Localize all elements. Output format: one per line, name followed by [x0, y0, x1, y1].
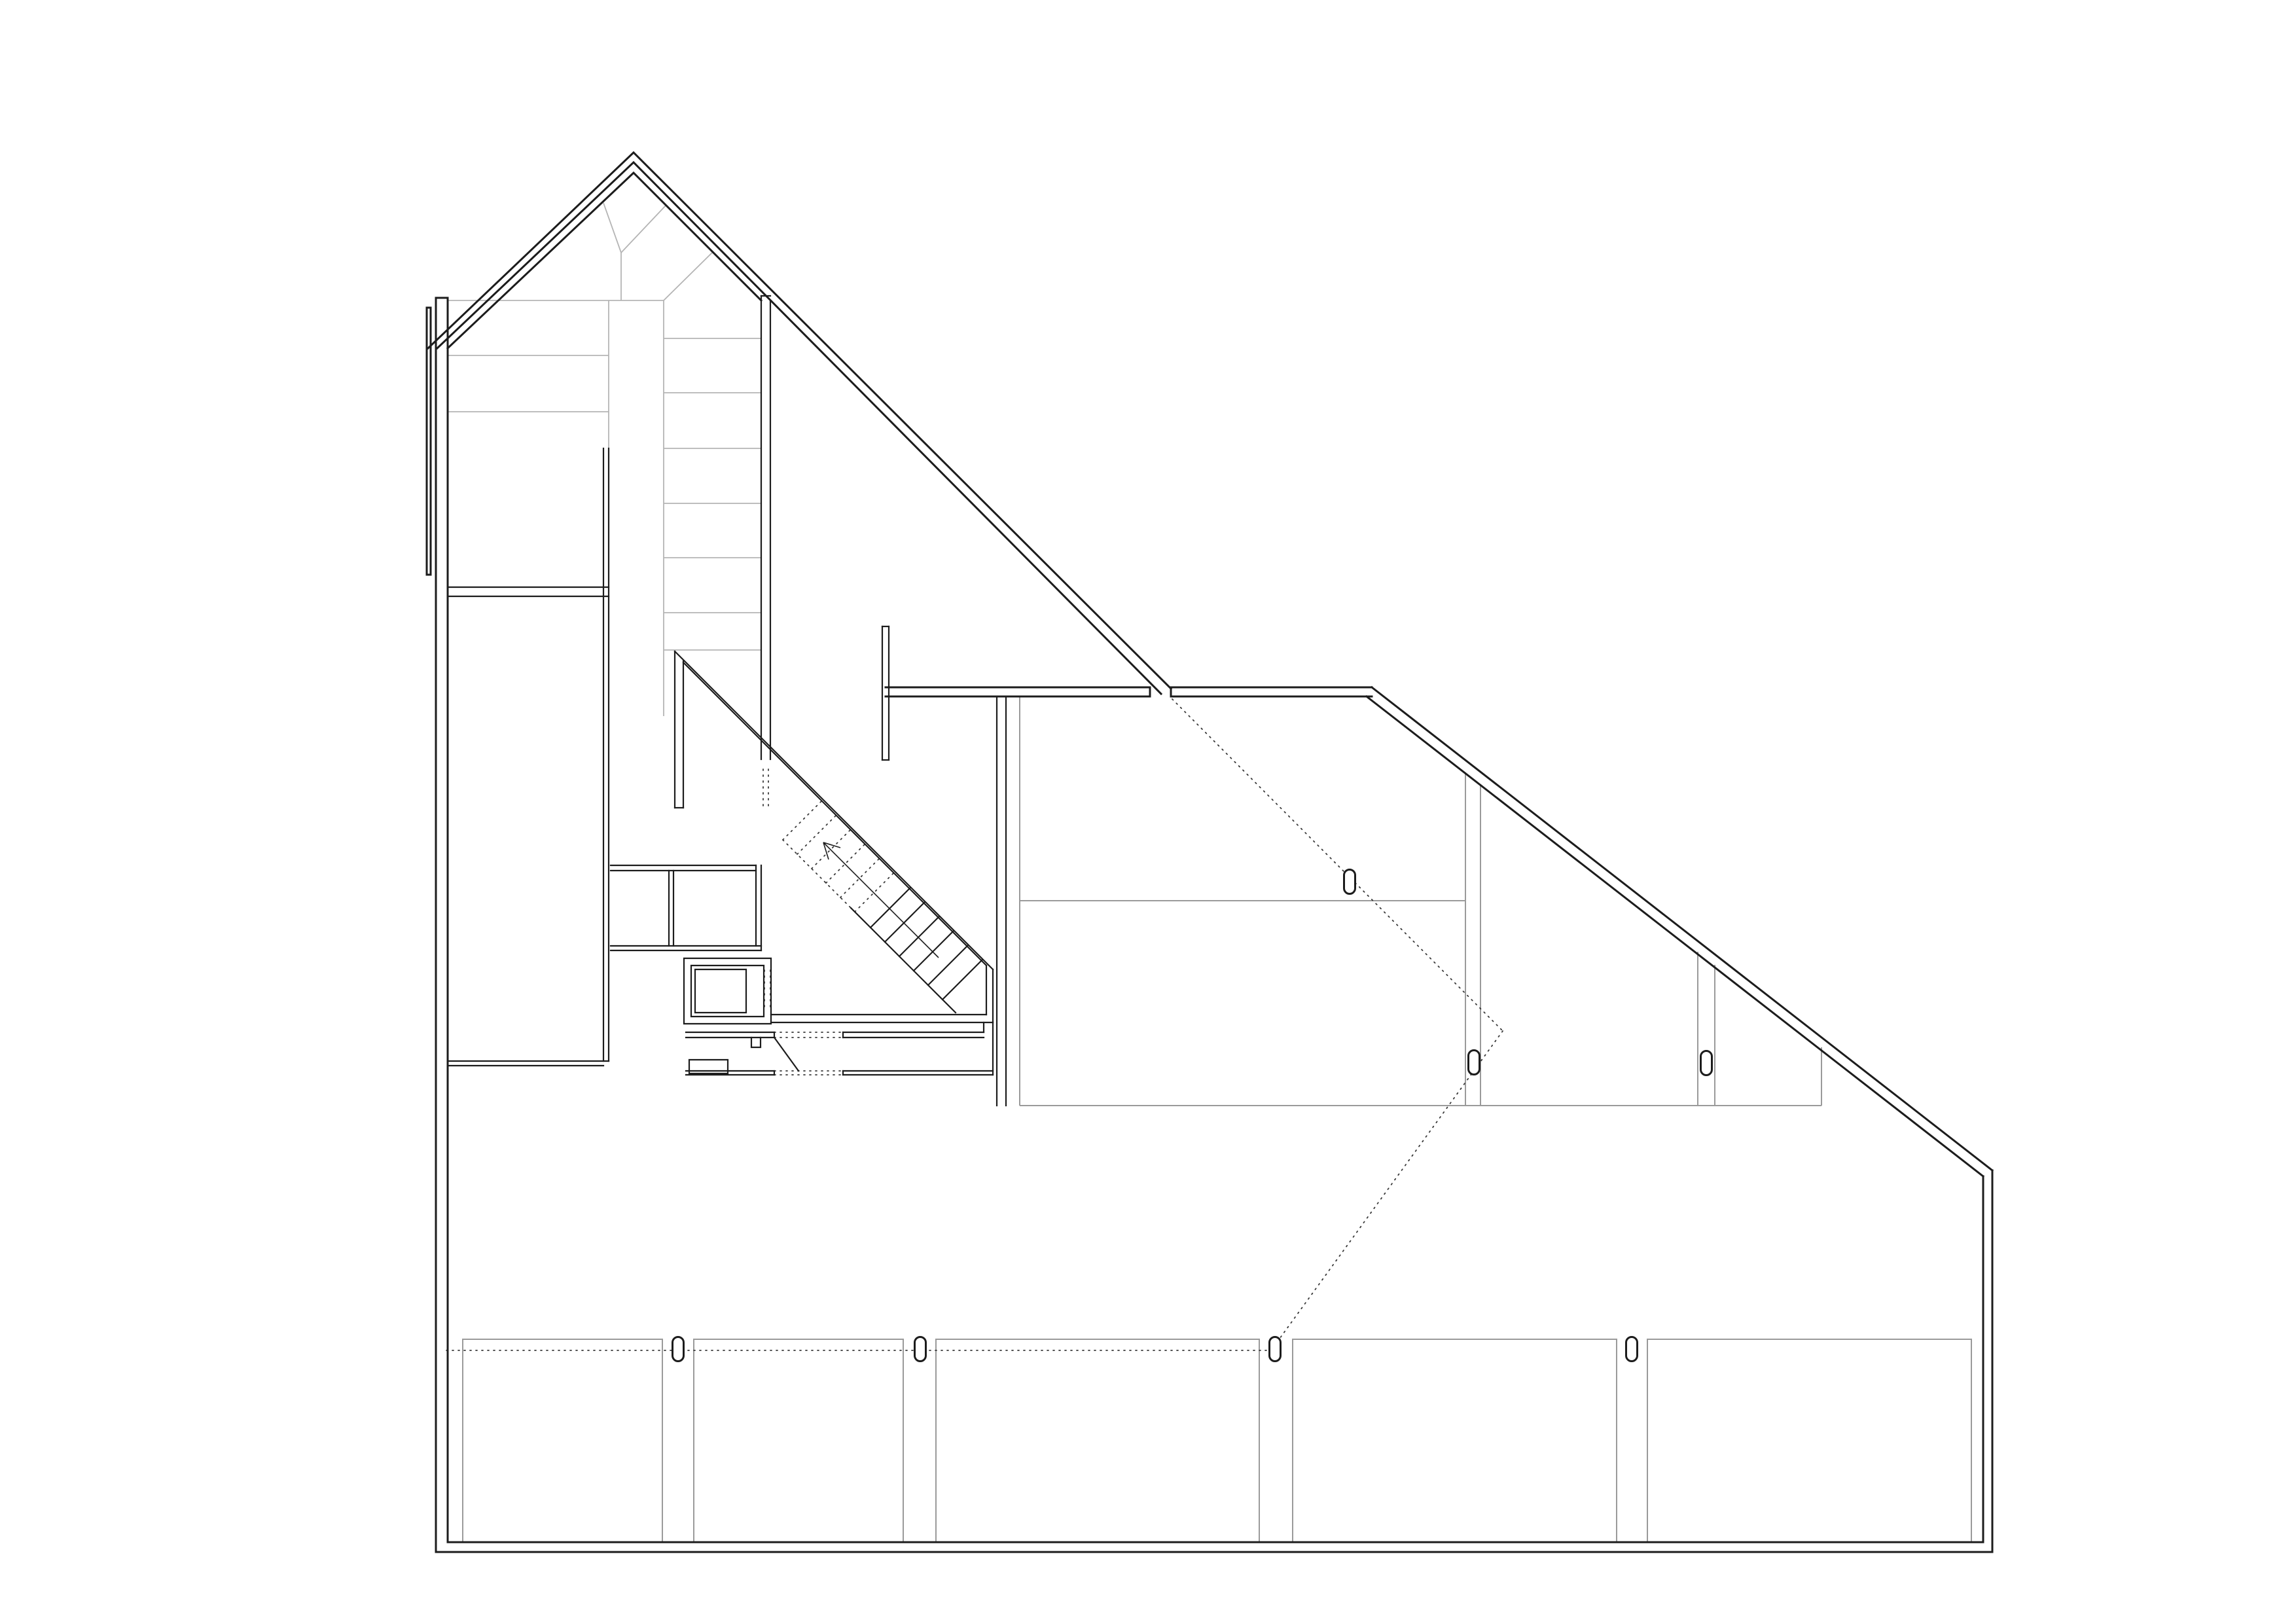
column-bay-4-icon: [1626, 1337, 1638, 1362]
paper-background: [0, 0, 2296, 1624]
column-bay-1-icon: [673, 1337, 684, 1362]
column-east-1-icon: [1344, 870, 1355, 894]
column-bay-3-icon: [1270, 1337, 1281, 1362]
column-bay-2-icon: [915, 1337, 926, 1362]
column-east-2-icon: [1469, 1051, 1480, 1075]
floor-plan-page: [0, 0, 2296, 1624]
floor-plan-drawing: [0, 0, 2296, 1624]
column-east-3-icon: [1701, 1051, 1712, 1075]
